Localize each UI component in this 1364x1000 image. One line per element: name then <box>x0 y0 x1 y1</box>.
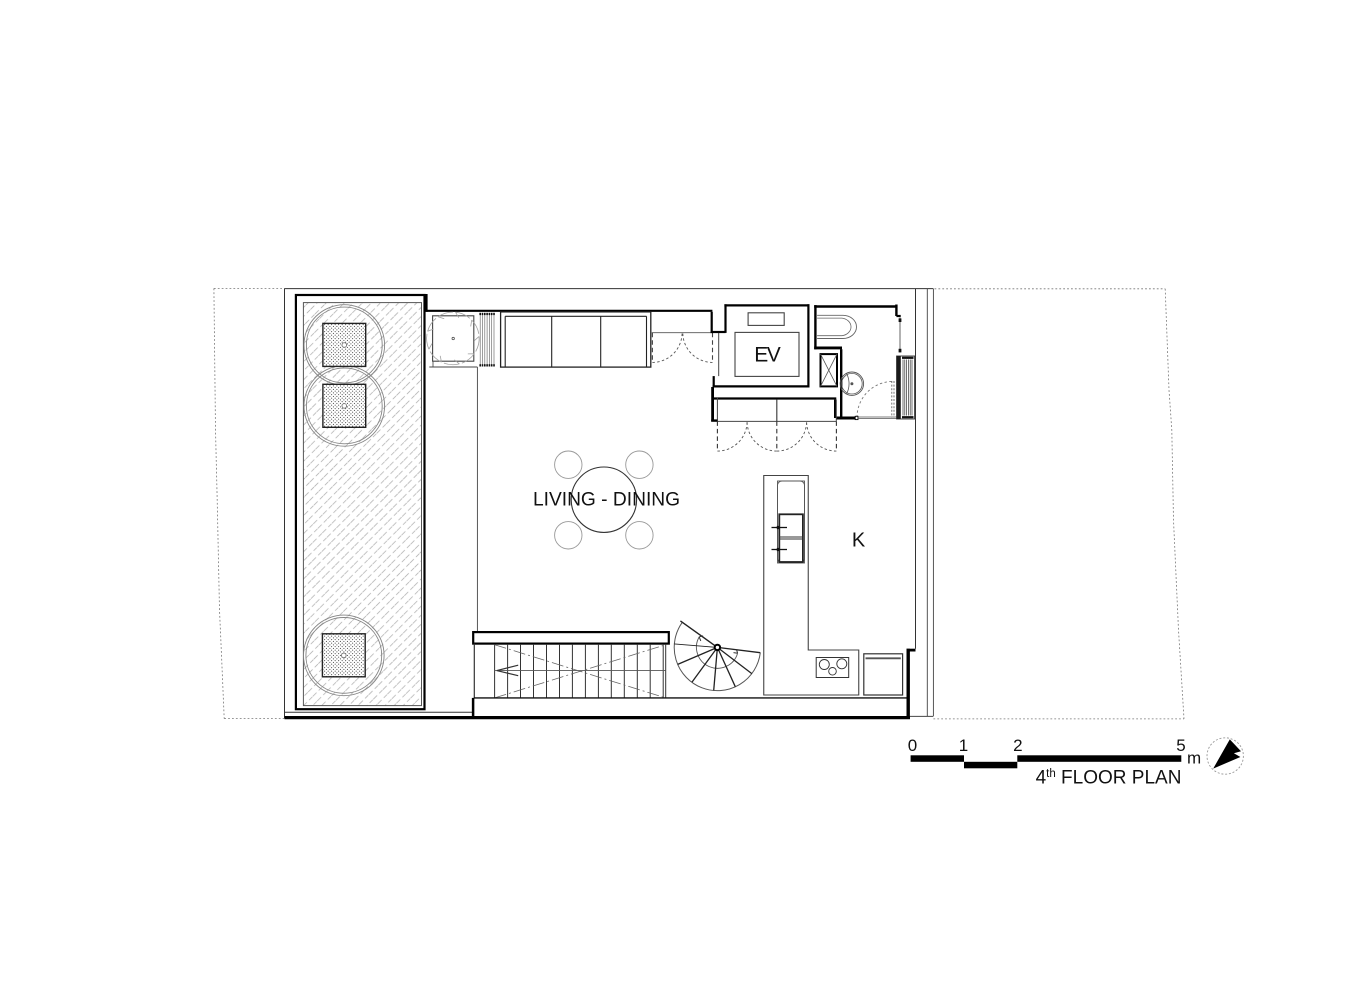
svg-text:2: 2 <box>1013 736 1022 755</box>
svg-text:5: 5 <box>1176 736 1185 755</box>
svg-text:4th FLOOR PLAN: 4th FLOOR PLAN <box>1036 767 1182 788</box>
svg-text:1: 1 <box>959 736 968 755</box>
svg-text:m: m <box>1187 749 1201 768</box>
svg-text:0: 0 <box>908 736 917 755</box>
svg-text:LIVING - DINING: LIVING - DINING <box>533 490 680 511</box>
svg-text:EV: EV <box>754 344 781 367</box>
svg-text:K: K <box>852 529 866 551</box>
